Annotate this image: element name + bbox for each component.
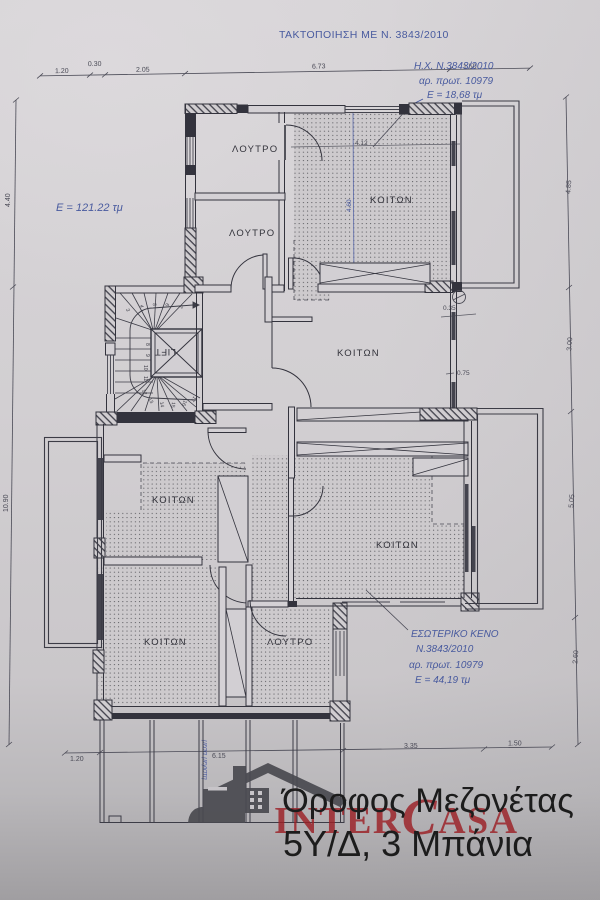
svg-text:ΛΟΥΤΡΟ: ΛΟΥΤΡΟ — [229, 228, 275, 239]
svg-text:10: 10 — [142, 365, 148, 371]
svg-text:ΚΟΙΤΩΝ: ΚΟΙΤΩΝ — [337, 348, 380, 359]
svg-text:LIFT: LIFT — [154, 346, 176, 357]
svg-text:1.20: 1.20 — [55, 68, 69, 75]
svg-text:Η.Χ. Ν.3843/2010: Η.Χ. Ν.3843/2010 — [414, 61, 494, 72]
svg-text:ΛΟΥΤΡΟ: ΛΟΥΤΡΟ — [232, 144, 278, 155]
svg-text:αρ. πρωτ. 10979: αρ. πρωτ. 10979 — [419, 76, 494, 87]
svg-text:0.35: 0.35 — [443, 305, 456, 312]
svg-text:6.15: 6.15 — [212, 753, 226, 760]
svg-text:ΚΟΙΤΩΝ: ΚΟΙΤΩΝ — [376, 540, 419, 551]
svg-text:3.00: 3.00 — [566, 337, 574, 351]
svg-text:Όροφος Μεζονέτας: Όροφος Μεζονέτας — [280, 782, 574, 820]
svg-text:1.50: 1.50 — [508, 741, 522, 748]
svg-text:1.20: 1.20 — [70, 756, 84, 763]
svg-text:0.30: 0.30 — [88, 61, 102, 68]
svg-text:ΚΟΙΤΩΝ: ΚΟΙΤΩΝ — [370, 195, 413, 206]
svg-text:Ε = 44,19 τμ: Ε = 44,19 τμ — [415, 675, 471, 686]
svg-text:2.60: 2.60 — [572, 650, 580, 664]
svg-text:4.85: 4.85 — [565, 180, 573, 194]
svg-text:E = 121.22 τμ: E = 121.22 τμ — [56, 202, 123, 214]
svg-text:11: 11 — [142, 376, 148, 381]
svg-text:ΚΟΙΤΩΝ: ΚΟΙΤΩΝ — [144, 637, 187, 648]
svg-text:6.73: 6.73 — [312, 63, 326, 70]
svg-text:10.90: 10.90 — [3, 494, 10, 512]
svg-text:ΛΟΥΤΡΟ: ΛΟΥΤΡΟ — [267, 637, 313, 648]
svg-text:9: 9 — [144, 354, 150, 357]
svg-text:5.05: 5.05 — [568, 494, 576, 508]
svg-text:ΕΣΩΤΕΡΙΚΟ ΚΕΝΟ: ΕΣΩΤΕΡΙΚΟ ΚΕΝΟ — [411, 629, 499, 640]
svg-text:8: 8 — [144, 343, 150, 346]
svg-text:μεσα μεγιστη: μεσα μεγιστη — [201, 739, 208, 780]
svg-text:5Υ/Δ, 3 Μπάνια: 5Υ/Δ, 3 Μπάνια — [283, 823, 533, 864]
svg-text:αρ. πρωτ. 10979: αρ. πρωτ. 10979 — [409, 660, 484, 671]
svg-text:Ε = 18,68 τμ: Ε = 18,68 τμ — [427, 90, 483, 101]
svg-text:4.40: 4.40 — [5, 193, 12, 207]
svg-text:2.05: 2.05 — [136, 67, 150, 74]
svg-text:ΚΟΙΤΩΝ: ΚΟΙΤΩΝ — [152, 495, 195, 506]
svg-text:4.12: 4.12 — [355, 140, 368, 147]
svg-text:3.35: 3.35 — [404, 743, 418, 750]
svg-text:15: 15 — [170, 402, 176, 408]
svg-text:0.75: 0.75 — [457, 370, 470, 377]
svg-text:Ν.3843/2010: Ν.3843/2010 — [416, 644, 474, 655]
svg-text:ΤΑΚΤΟΠΟΙΗΣΗ ΜΕ Ν. 3843/2010: ΤΑΚΤΟΠΟΙΗΣΗ ΜΕ Ν. 3843/2010 — [279, 29, 449, 41]
svg-text:4.60: 4.60 — [346, 199, 353, 212]
